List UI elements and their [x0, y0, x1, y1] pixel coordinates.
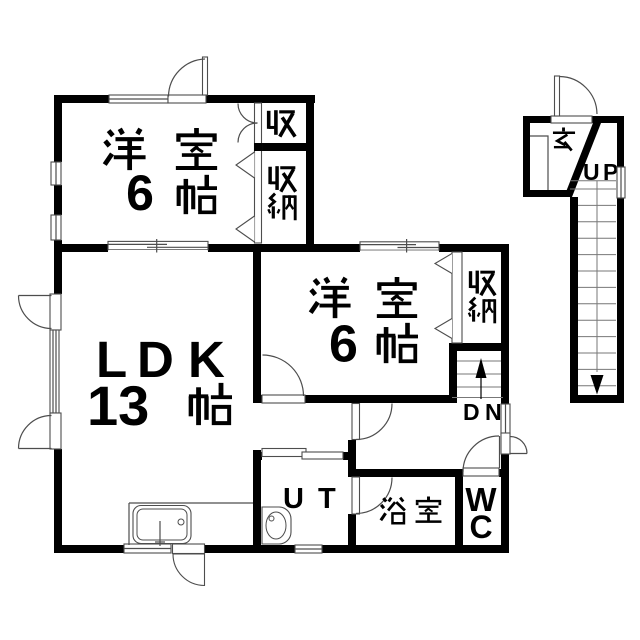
svg-text:6: 6	[126, 165, 154, 221]
svg-text:13: 13	[87, 374, 149, 437]
svg-text:6: 6	[329, 316, 358, 374]
svg-text:D: D	[463, 399, 480, 425]
svg-text:N: N	[485, 399, 502, 425]
svg-text:C: C	[469, 509, 492, 545]
svg-text:K: K	[188, 331, 225, 388]
svg-text:T: T	[318, 483, 336, 515]
